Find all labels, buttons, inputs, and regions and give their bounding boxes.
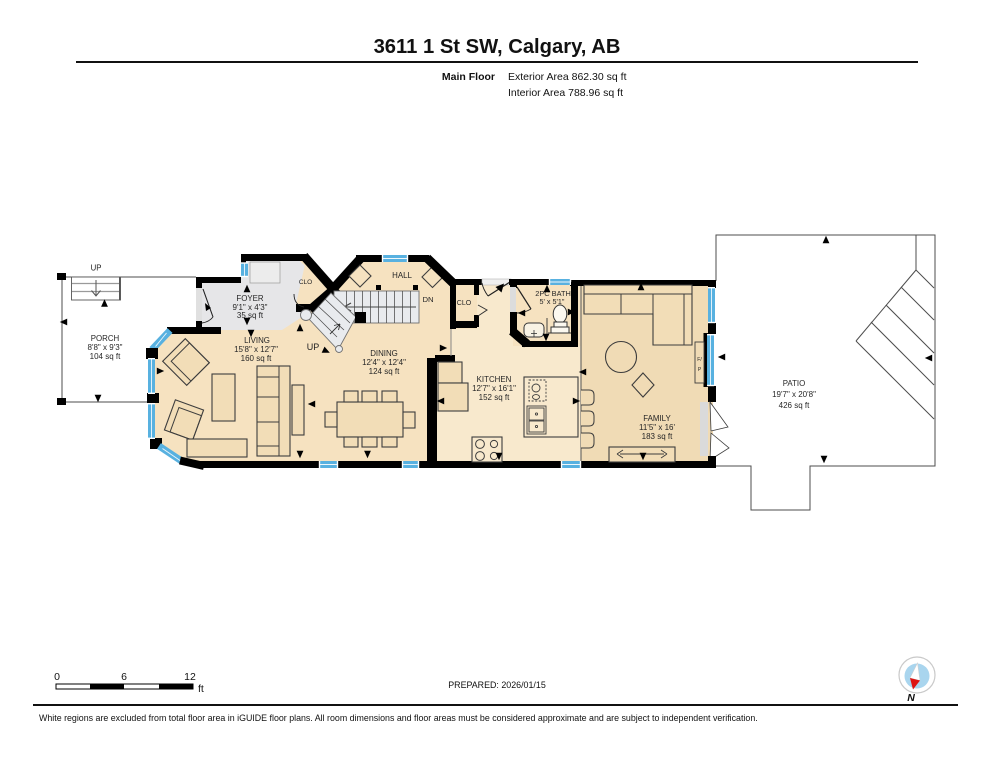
svg-text:PREPARED: 2026/01/15: PREPARED: 2026/01/15 [448, 680, 546, 690]
svg-text:8'8" x 9'3": 8'8" x 9'3" [88, 343, 123, 352]
svg-text:124 sq ft: 124 sq ft [369, 367, 400, 376]
svg-text:PATIO: PATIO [783, 379, 806, 388]
svg-text:152 sq ft: 152 sq ft [479, 393, 510, 402]
svg-text:DN: DN [422, 295, 433, 304]
svg-text:19'7" x 20'8": 19'7" x 20'8" [772, 390, 816, 399]
svg-text:Interior Area 788.96 sq ft: Interior Area 788.96 sq ft [508, 87, 623, 99]
svg-text:35 sq ft: 35 sq ft [237, 311, 264, 320]
svg-text:N: N [907, 692, 915, 704]
svg-text:DINING: DINING [370, 349, 398, 358]
svg-text:3611 1 St SW, Calgary, AB: 3611 1 St SW, Calgary, AB [374, 36, 621, 58]
svg-text:160 sq ft: 160 sq ft [241, 354, 272, 363]
svg-text:183 sq ft: 183 sq ft [642, 432, 673, 441]
svg-text:KITCHEN: KITCHEN [477, 375, 512, 384]
svg-text:Exterior Area 862.30 sq ft: Exterior Area 862.30 sq ft [508, 71, 627, 83]
svg-text:White regions are excluded fro: White regions are excluded from total fl… [39, 713, 758, 723]
svg-text:ft: ft [198, 683, 204, 695]
svg-text:12'7" x 16'1": 12'7" x 16'1" [472, 384, 516, 393]
svg-text:PORCH: PORCH [91, 334, 120, 343]
svg-text:104 sq ft: 104 sq ft [90, 352, 121, 361]
svg-text:12'4" x 12'4": 12'4" x 12'4" [362, 358, 406, 367]
svg-text:CLO: CLO [299, 279, 312, 286]
svg-text:FOYER: FOYER [236, 294, 263, 303]
svg-text:LIVING: LIVING [244, 336, 270, 345]
svg-text:15'8" x 12'7": 15'8" x 12'7" [234, 345, 278, 354]
svg-text:426 sq ft: 426 sq ft [779, 401, 810, 410]
svg-text:12: 12 [184, 671, 196, 683]
svg-text:0: 0 [54, 671, 60, 683]
svg-text:UP: UP [307, 342, 320, 352]
svg-text:6: 6 [121, 671, 127, 683]
svg-text:F/: F/ [697, 357, 702, 363]
svg-text:11'5" x 16': 11'5" x 16' [639, 423, 675, 432]
svg-text:UP: UP [91, 264, 102, 273]
svg-text:HALL: HALL [392, 271, 412, 280]
svg-text:CLO: CLO [457, 300, 472, 307]
svg-text:Main Floor: Main Floor [442, 71, 495, 83]
svg-text:FAMILY: FAMILY [643, 414, 671, 423]
